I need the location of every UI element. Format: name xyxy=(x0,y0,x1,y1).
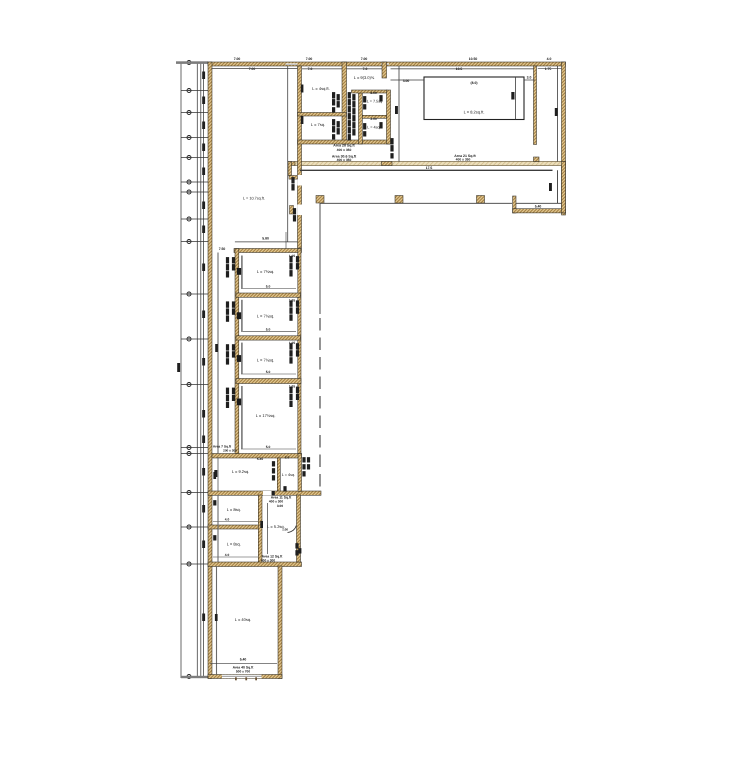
svg-text:L = 7¾sq.: L = 7¾sq. xyxy=(257,357,275,362)
svg-text:5.0: 5.0 xyxy=(266,327,271,331)
svg-text:5.0: 5.0 xyxy=(266,285,271,289)
svg-text:(8.0): (8.0) xyxy=(471,81,478,85)
svg-text:400 x 350: 400 x 350 xyxy=(337,148,352,152)
svg-text:L = 9.2sq.: L = 9.2sq. xyxy=(232,469,250,474)
svg-text:1.05: 1.05 xyxy=(289,385,295,389)
svg-text:5.0: 5.0 xyxy=(266,370,271,374)
svg-text:L = 4sq.: L = 4sq. xyxy=(282,473,295,477)
svg-text:3.00: 3.00 xyxy=(403,79,410,83)
svg-text:L = 8sq.: L = 8sq. xyxy=(227,507,241,512)
svg-text:L = 7sq.: L = 7sq. xyxy=(311,122,325,127)
svg-text:7.0: 7.0 xyxy=(308,67,313,71)
svg-text:2.00: 2.00 xyxy=(370,117,376,121)
svg-text:400 x 350: 400 x 350 xyxy=(337,158,352,162)
svg-text:400 x 300: 400 x 300 xyxy=(269,500,283,504)
svg-text:4.0: 4.0 xyxy=(225,553,230,557)
svg-text:5.40: 5.40 xyxy=(535,205,542,209)
svg-text:400 x 350: 400 x 350 xyxy=(456,158,471,162)
svg-text:1.05: 1.05 xyxy=(289,298,295,302)
svg-text:L = 9(3.0)¾: L = 9(3.0)¾ xyxy=(354,75,375,80)
svg-text:1.05: 1.05 xyxy=(289,341,295,345)
svg-text:L = 8sq.: L = 8sq. xyxy=(227,542,241,547)
svg-text:2.0: 2.0 xyxy=(285,456,290,460)
svg-text:5.40: 5.40 xyxy=(257,457,264,461)
svg-text:4.0: 4.0 xyxy=(225,518,230,522)
svg-text:7.00: 7.00 xyxy=(361,57,368,61)
svg-text:7.0: 7.0 xyxy=(363,67,368,71)
svg-text:1.05: 1.05 xyxy=(289,254,295,258)
svg-text:1.06: 1.06 xyxy=(282,528,288,532)
svg-text:L = 17½sq.: L = 17½sq. xyxy=(256,413,276,418)
svg-text:17.5: 17.5 xyxy=(426,166,433,170)
svg-text:400 x 300: 400 x 300 xyxy=(261,559,275,563)
svg-text:2.00: 2.00 xyxy=(370,91,376,95)
svg-text:L = 4sq.ft.: L = 4sq.ft. xyxy=(312,86,330,91)
svg-text:200 x 300: 200 x 300 xyxy=(223,449,237,453)
svg-text:5.80: 5.80 xyxy=(262,236,269,240)
svg-text:L = 7¾sq.: L = 7¾sq. xyxy=(257,314,275,319)
svg-text:5.40: 5.40 xyxy=(240,658,247,662)
svg-text:10.5: 10.5 xyxy=(456,67,463,71)
svg-text:5.0: 5.0 xyxy=(266,445,271,449)
svg-text:7.00: 7.00 xyxy=(306,57,313,61)
svg-text:4.0: 4.0 xyxy=(547,57,552,61)
svg-text:3.0: 3.0 xyxy=(527,76,532,80)
svg-text:3.00: 3.00 xyxy=(277,504,283,508)
svg-text:L = 10.7sq.ft.: L = 10.7sq.ft. xyxy=(243,196,265,200)
svg-text:L = 7¾sq.: L = 7¾sq. xyxy=(257,269,275,274)
svg-text:7.50: 7.50 xyxy=(219,247,226,251)
svg-text:500 x 700: 500 x 700 xyxy=(236,670,250,674)
svg-text:10.50: 10.50 xyxy=(469,57,478,61)
svg-text:7.00: 7.00 xyxy=(234,57,241,61)
svg-text:L = 40sq.: L = 40sq. xyxy=(235,617,251,622)
svg-text:L = 8.2sq.ft.: L = 8.2sq.ft. xyxy=(464,110,485,115)
